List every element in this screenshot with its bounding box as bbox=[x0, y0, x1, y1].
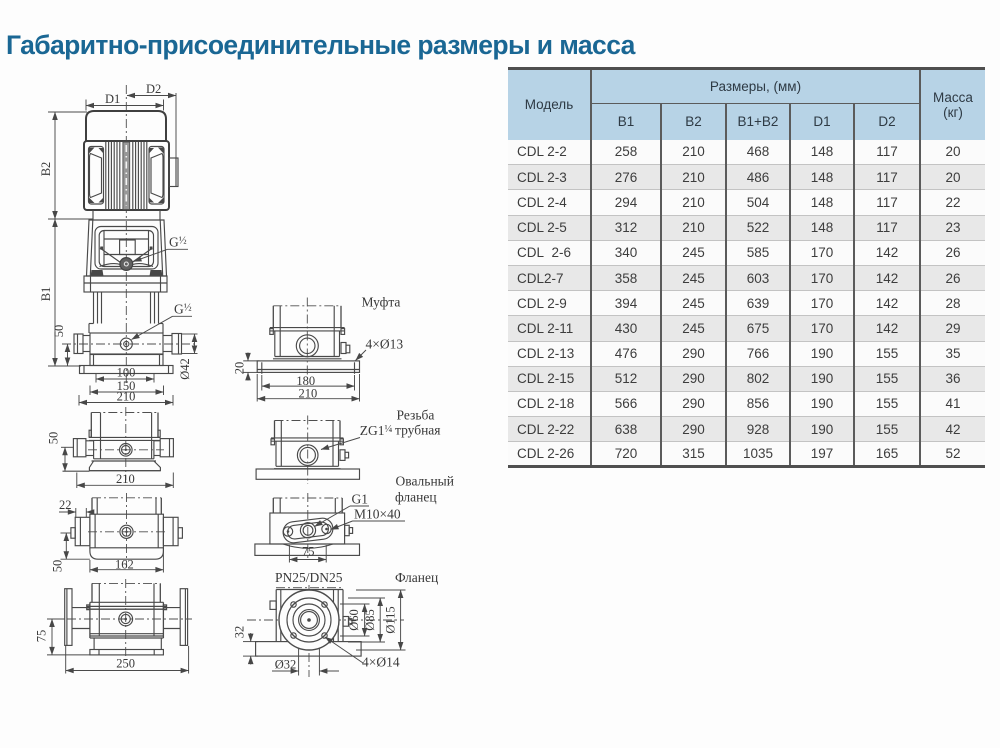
svg-text:G½: G½ bbox=[174, 302, 192, 317]
svg-text:D2: D2 bbox=[146, 82, 161, 96]
svg-text:PN25/DN25: PN25/DN25 bbox=[275, 570, 343, 585]
svg-text:162: 162 bbox=[115, 557, 134, 571]
svg-text:75: 75 bbox=[302, 545, 315, 559]
svg-text:210: 210 bbox=[116, 472, 135, 486]
svg-text:4×Ø14: 4×Ø14 bbox=[362, 655, 400, 670]
svg-text:B2: B2 bbox=[39, 162, 53, 177]
svg-text:75: 75 bbox=[35, 630, 49, 643]
svg-text:ZG1¼: ZG1¼ bbox=[360, 423, 393, 438]
svg-text:32: 32 bbox=[233, 626, 247, 639]
svg-text:50: 50 bbox=[51, 560, 65, 573]
svg-text:G½: G½ bbox=[169, 235, 187, 250]
svg-text:100: 100 bbox=[117, 366, 136, 380]
svg-text:Ø42: Ø42 bbox=[178, 358, 192, 380]
svg-text:250: 250 bbox=[116, 657, 135, 671]
svg-text:Фланец: Фланец bbox=[395, 570, 438, 585]
svg-text:D1: D1 bbox=[105, 92, 120, 106]
svg-text:Муфта: Муфта bbox=[362, 295, 401, 310]
svg-text:Резьба: Резьба bbox=[397, 408, 435, 423]
svg-text:Овальный: Овальный bbox=[396, 474, 454, 489]
svg-text:4×Ø13: 4×Ø13 bbox=[366, 337, 404, 352]
svg-text:50: 50 bbox=[47, 432, 61, 445]
svg-text:трубная: трубная bbox=[395, 423, 441, 438]
svg-text:M10×40: M10×40 bbox=[354, 507, 401, 522]
svg-text:фланец: фланец bbox=[395, 490, 437, 505]
svg-text:Ø115: Ø115 bbox=[383, 606, 397, 633]
svg-text:Ø85: Ø85 bbox=[363, 609, 377, 631]
svg-text:22: 22 bbox=[59, 498, 72, 512]
svg-text:G1: G1 bbox=[352, 492, 369, 507]
svg-text:Ø60: Ø60 bbox=[347, 609, 361, 631]
svg-text:B1: B1 bbox=[39, 287, 53, 302]
svg-text:Ø32: Ø32 bbox=[275, 658, 297, 672]
svg-text:50: 50 bbox=[52, 325, 66, 338]
svg-text:210: 210 bbox=[117, 390, 136, 404]
